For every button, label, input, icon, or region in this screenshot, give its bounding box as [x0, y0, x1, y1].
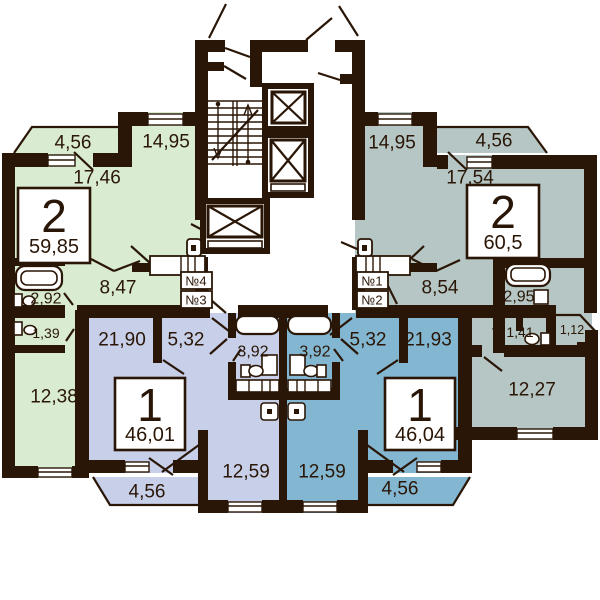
entrance-tag-2-label: №2: [361, 293, 382, 308]
apartment-total-area: 46,01: [125, 424, 175, 446]
counter-icon: [236, 380, 279, 392]
apartment-type: 2: [41, 190, 67, 242]
label-wc-area: 1,41: [506, 324, 533, 340]
counter-icon: [288, 380, 331, 392]
label-bathroom-area: 3,92: [237, 344, 268, 361]
label-living-area: 17,46: [73, 168, 121, 189]
apartment-type: 2: [490, 186, 516, 238]
label-balcony-area: 4,56: [476, 131, 513, 152]
label-hall-area: 5,32: [168, 330, 205, 351]
label-bedroom-area: 14,95: [368, 133, 416, 154]
apartment-total-area: 59,85: [29, 236, 79, 258]
label-wc-area: 1,39: [32, 325, 59, 341]
sink-icon: [14, 294, 22, 307]
label-balcony-area: 4,56: [129, 482, 166, 503]
label-bathroom-area: 2,95: [503, 289, 534, 306]
bathtub-icon: [236, 316, 279, 334]
apartment-total-area: 60,5: [484, 232, 523, 254]
label-balcony-area: 4,56: [55, 133, 92, 154]
label-bedroom-area: 14,95: [142, 132, 190, 153]
toilet-tank-icon: [14, 322, 22, 335]
bathtub-icon: [288, 316, 331, 334]
stairs-icon: [208, 101, 262, 166]
label-hall-area: 8,54: [422, 278, 459, 299]
label-living-area: 21,90: [98, 330, 146, 351]
label-hall-area: 8,47: [100, 278, 137, 299]
label-balcony-area: 4,56: [382, 479, 419, 500]
floor-plan: 4,56 14,95 17,46 8,47 2,92 1,39 12,38 4,…: [0, 0, 600, 600]
label-kitchen-area: 12,38: [30, 387, 78, 408]
sink-icon: [534, 290, 548, 304]
label-kitchen-area: 12,59: [222, 462, 270, 483]
entrance-tag-4-label: №4: [185, 274, 206, 289]
entrance-tag-3-label: №3: [185, 293, 206, 308]
floor-plan-page: 4,56 14,95 17,46 8,47 2,92 1,39 12,38 4,…: [0, 0, 600, 600]
label-bathroom-area: 2,92: [30, 291, 61, 308]
toilet-icon: [304, 366, 318, 377]
toilet-icon: [249, 366, 263, 377]
apartment-total-area: 46,04: [395, 424, 445, 446]
label-kitchen-area: 12,27: [508, 380, 556, 401]
label-hall-area: 5,32: [350, 330, 387, 351]
label-small-balcony-area: 1,12: [560, 323, 584, 337]
label-kitchen-area: 12,59: [298, 462, 346, 483]
label-living-area: 21,93: [404, 330, 452, 351]
entrance-tag-1-label: №1: [361, 274, 382, 289]
label-bathroom-area: 3,92: [299, 344, 330, 361]
